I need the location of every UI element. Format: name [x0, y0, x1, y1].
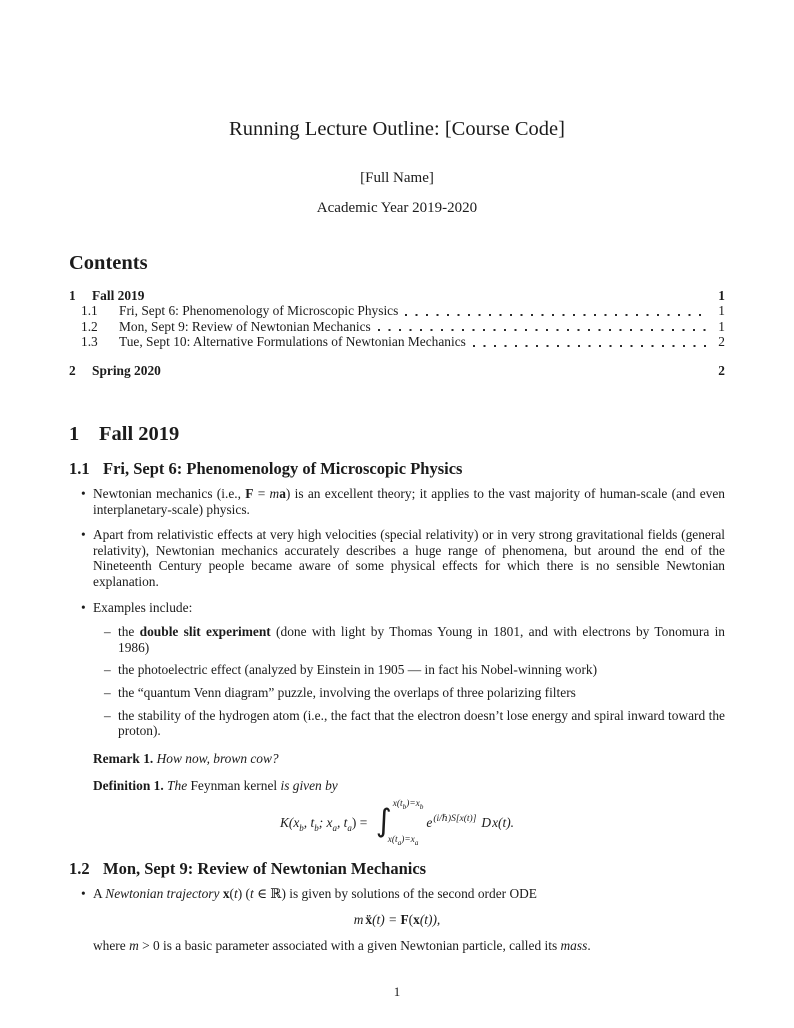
remark-1: Remark 1. How now, brown cow?: [93, 751, 725, 767]
math-x: x: [219, 886, 229, 901]
example-hydrogen-stability: the stability of the hydrogen atom (i.e.…: [118, 708, 725, 739]
math-m: m: [129, 938, 139, 953]
bold-term: double slit experiment: [140, 624, 271, 639]
text: Newtonian mechanics (i.e.,: [93, 486, 245, 501]
text: x(t: [393, 799, 403, 809]
remark-label: Remark 1.: [93, 751, 153, 766]
page-number: 1: [0, 984, 794, 1000]
subsection-title: Mon, Sept 9: Review of Newtonian Mechani…: [103, 859, 426, 878]
text: The: [167, 778, 190, 793]
toc-entry-page: 1: [716, 303, 725, 318]
feynman-kernel-formula: K(xb, tb; xa, ta) = ∫x(tb)=xbx(ta)=xae(i…: [69, 801, 725, 847]
bullet-list: Newtonian mechanics (i.e., F = ma) is an…: [69, 486, 725, 739]
integral-sign: ∫x(tb)=xbx(ta)=xa: [376, 799, 424, 845]
toc-entry-number: 1: [69, 288, 92, 303]
text: )=x: [401, 835, 415, 845]
definition-label: Definition 1.: [93, 778, 164, 793]
toc-entry-label: Spring 2020: [92, 363, 161, 378]
subscript: b: [420, 802, 424, 811]
toc-entry-number: 2: [69, 363, 92, 378]
toc-entry-1-1[interactable]: 1.1 Fri, Sept 6: Phenomenology of Micros…: [69, 303, 725, 318]
toc-entry-label: Mon, Sept 9: Review of Newtonian Mechani…: [119, 319, 371, 334]
defined-term: Feynman kernel: [190, 778, 277, 793]
equals-sign: ) =: [352, 815, 371, 830]
integral-glyph: ∫: [376, 806, 392, 837]
toc-entry-spring-2020[interactable]: 2 Spring 2020 2: [69, 363, 725, 378]
text: > 0 is a basic parameter associated with…: [139, 938, 561, 953]
math-e: e: [426, 815, 432, 830]
page-title: Running Lecture Outline: [Course Code]: [69, 0, 725, 141]
text: A: [93, 886, 105, 901]
text: where: [93, 938, 129, 953]
bullet-list: A Newtonian trajectory x(t) (t ∈ ℝ) is g…: [69, 886, 725, 902]
lower-limit: x(ta)=xa: [383, 835, 424, 845]
text: .: [587, 938, 590, 953]
text: )=x: [406, 799, 420, 809]
text: (t) =: [372, 912, 400, 927]
toc-entry-page: 1: [716, 319, 725, 334]
subscript: a: [415, 838, 419, 847]
example-quantum-venn: the “quantum Venn diagram” puzzle, invol…: [118, 685, 725, 701]
mass-paragraph: where m > 0 is a basic parameter associa…: [93, 938, 725, 954]
exponent: (i/ℏ)S[x(t)]: [433, 814, 476, 824]
toc-entry-page: 1: [716, 288, 725, 303]
newton-ode-formula: mẍ(t) = F(x(t)),: [69, 912, 725, 928]
text: x(t: [388, 835, 398, 845]
toc-entry-number: 1.2: [81, 319, 119, 334]
text: is given by: [277, 778, 338, 793]
dot-leader: [473, 345, 709, 347]
math-lhs: , t: [337, 815, 347, 830]
remark-text: How now, brown cow?: [157, 751, 279, 766]
upper-limit: x(tb)=xb: [393, 799, 424, 809]
math-lhs: , t: [304, 815, 314, 830]
math-m: m: [270, 486, 280, 501]
math-lhs: ; x: [319, 815, 333, 830]
text: ) (: [238, 886, 250, 901]
subsection-number: 1.1: [69, 459, 103, 478]
toc-entry-1-2[interactable]: 1.2 Mon, Sept 9: Review of Newtonian Mec…: [69, 319, 725, 334]
toc-entry-label: Tue, Sept 10: Alternative Formulations o…: [119, 334, 466, 349]
bullet-examples: Examples include: the double slit experi…: [93, 600, 725, 739]
subsection-1-1-heading: 1.1Fri, Sept 6: Phenomenology of Microsc…: [69, 459, 725, 478]
subsection-number: 1.2: [69, 859, 103, 878]
text: Examples include:: [93, 600, 192, 615]
text: the: [118, 624, 140, 639]
text: x(t).: [492, 815, 514, 830]
section-number: 1: [69, 423, 99, 446]
subsection-1-2-heading: 1.2Mon, Sept 9: Review of Newtonian Mech…: [69, 859, 725, 878]
examples-list: the double slit experiment (done with li…: [93, 624, 725, 739]
toc-entry-number: 1.3: [81, 334, 119, 349]
math-m: m: [354, 912, 364, 927]
academic-year: Academic Year 2019-2020: [69, 200, 725, 217]
document-page: Running Lecture Outline: [Course Code] […: [0, 0, 794, 1028]
math-lhs: K(x: [280, 815, 299, 830]
math-x: x: [413, 912, 420, 927]
text: (t)),: [420, 912, 440, 927]
toc-entry-number: 1.1: [81, 303, 119, 318]
toc-entry-page: 2: [716, 334, 725, 349]
integral-limits: x(tb)=xbx(ta)=xa: [392, 799, 424, 845]
section-title: Fall 2019: [99, 423, 179, 445]
text: =: [253, 486, 269, 501]
toc-entry-1-3[interactable]: 1.3 Tue, Sept 10: Alternative Formulatio…: [69, 334, 725, 349]
bullet-newtonian-trajectory: A Newtonian trajectory x(t) (t ∈ ℝ) is g…: [93, 886, 725, 902]
toc-entry-page: 2: [716, 363, 725, 378]
toc-entry-fall-2019[interactable]: 1 Fall 2019 1: [69, 288, 725, 303]
dot-leader: [405, 314, 709, 316]
example-double-slit: the double slit experiment (done with li…: [118, 624, 725, 655]
math-F: F: [400, 912, 408, 927]
path-integral-measure: Dx(t).: [481, 815, 514, 830]
script-D: D: [481, 815, 491, 830]
text: ∈ ℝ) is given by solutions of the second…: [254, 886, 537, 901]
definition-1: Definition 1. The Feynman kernel is give…: [93, 778, 725, 794]
table-of-contents: 1 Fall 2019 1 1.1 Fri, Sept 6: Phenomeno…: [69, 288, 725, 378]
example-photoelectric: the photoelectric effect (analyzed by Ei…: [118, 662, 725, 678]
author: [Full Name]: [69, 170, 725, 187]
subsection-title: Fri, Sept 6: Phenomenology of Microscopi…: [103, 459, 462, 478]
dot-leader: [378, 329, 709, 331]
italic-term: Newtonian trajectory: [105, 886, 219, 901]
bullet-newtonian-mechanics: Newtonian mechanics (i.e., F = ma) is an…: [93, 486, 725, 517]
toc-entry-label: Fall 2019: [92, 288, 144, 303]
section-1-heading: 1Fall 2019: [69, 423, 725, 446]
math-a: a: [279, 486, 286, 501]
italic-term: mass: [561, 938, 588, 953]
contents-heading: Contents: [69, 252, 725, 275]
bullet-relativistic-effects: Apart from relativistic effects at very …: [93, 527, 725, 589]
toc-entry-label: Fri, Sept 6: Phenomenology of Microscopi…: [119, 303, 398, 318]
